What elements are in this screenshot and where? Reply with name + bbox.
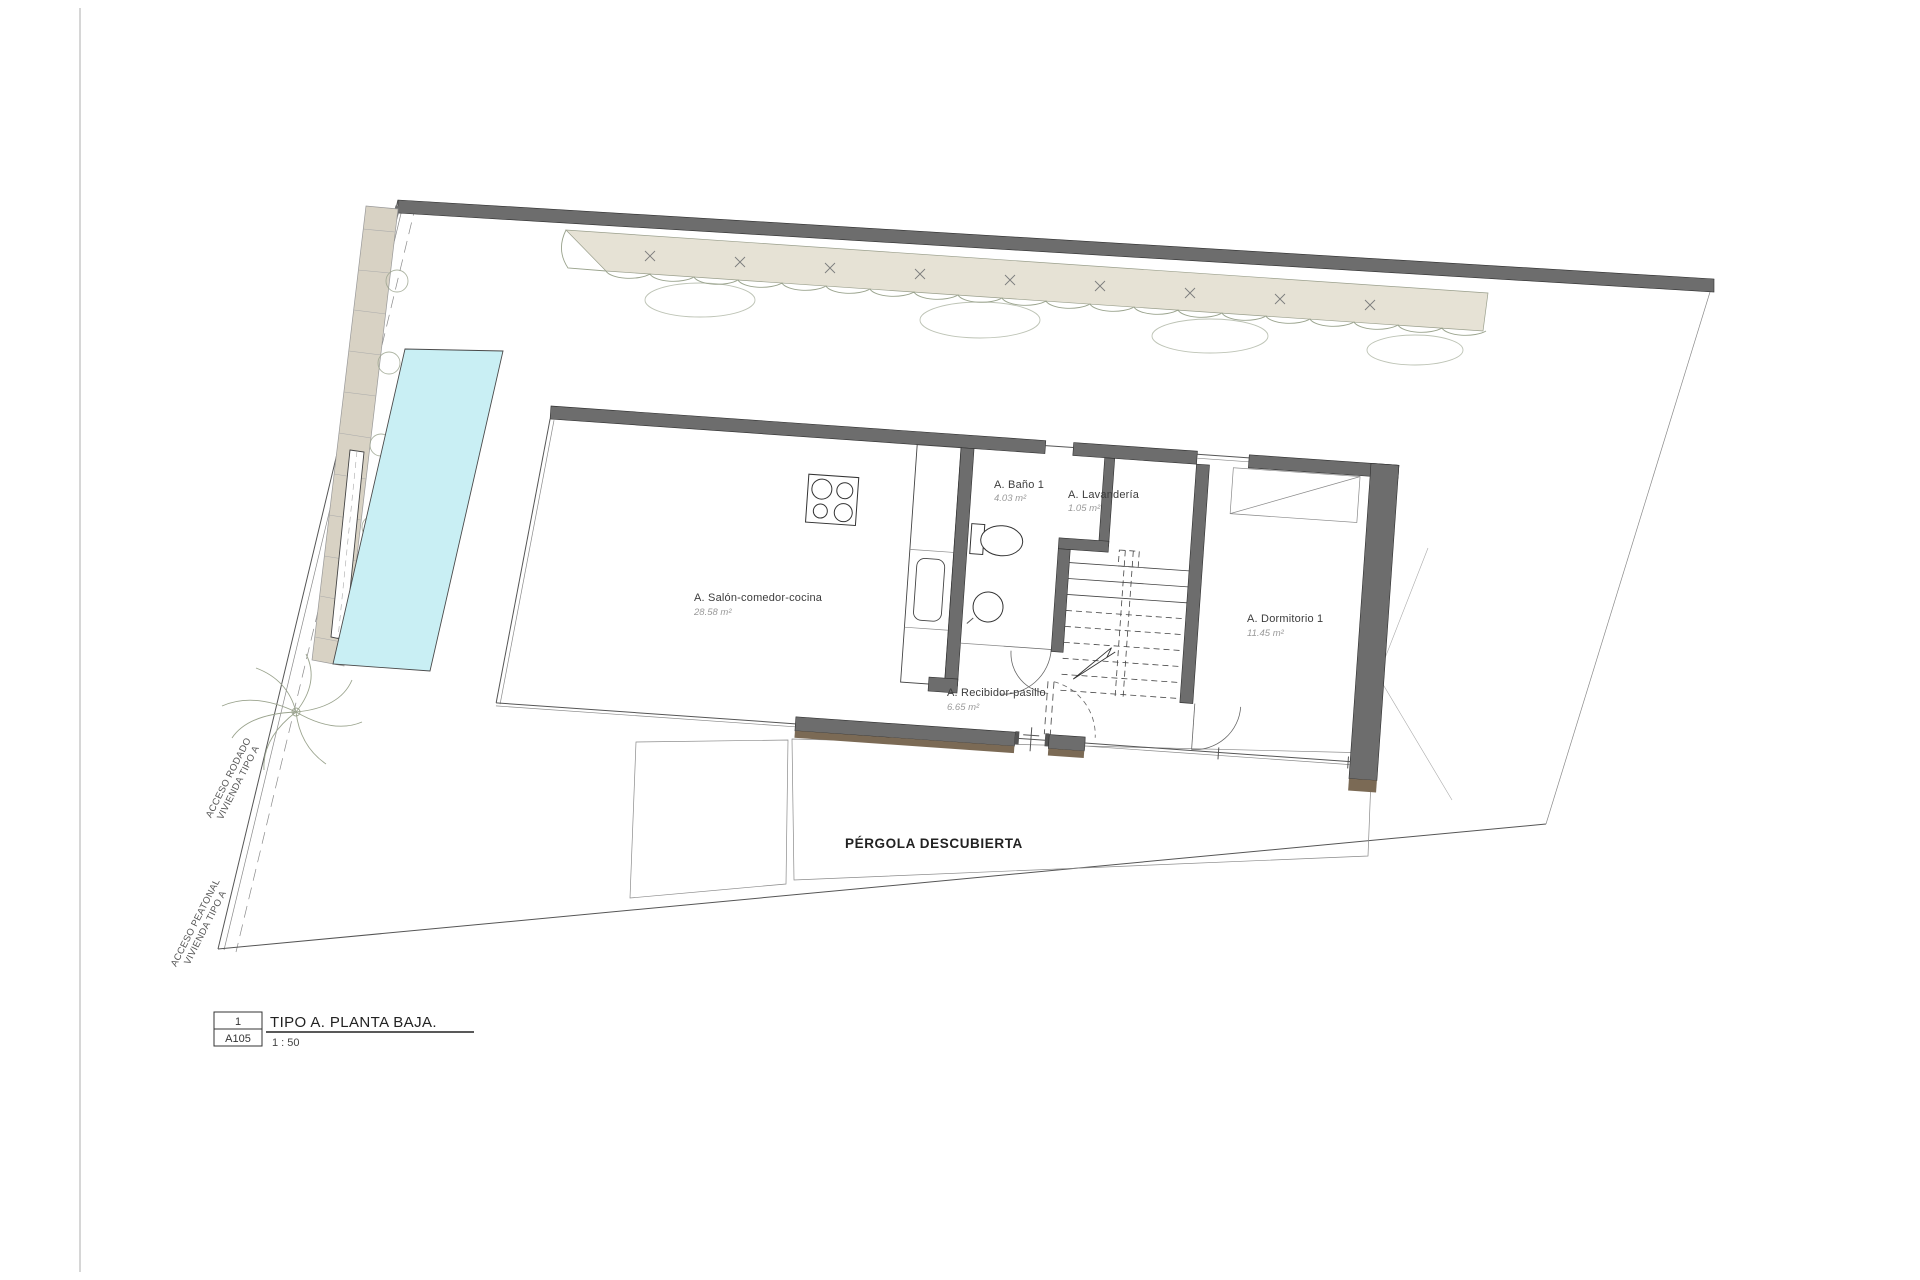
glass-facade-left xyxy=(496,417,550,706)
wall-bath-bottom xyxy=(960,643,1003,646)
sheet-scale: 1 : 50 xyxy=(272,1037,300,1049)
wall-laundry xyxy=(1099,458,1115,546)
label-bano1: A. Baño 1 xyxy=(994,479,1044,491)
dormitorio-door xyxy=(1192,704,1241,753)
wall-stairs-left xyxy=(1051,549,1070,653)
wall-right-cap xyxy=(1348,779,1377,793)
title-block: 1 A105 TIPO A. PLANTA BAJA. 1 : 50 xyxy=(214,1012,474,1049)
toilet-icon xyxy=(970,524,1024,558)
area-salon: 28.58 m² xyxy=(693,607,732,618)
window-salon-south xyxy=(496,703,795,724)
wall-right xyxy=(1349,463,1399,780)
sink-icon xyxy=(967,591,1004,626)
wall-dormitorio xyxy=(1180,464,1210,703)
stairs xyxy=(1060,547,1190,703)
sheet-number: 1 xyxy=(235,1016,241,1028)
terrace-outline xyxy=(630,740,788,898)
sheet-title: TIPO A. PLANTA BAJA. xyxy=(270,1014,437,1031)
wall-top-lavanderia xyxy=(1073,443,1198,465)
label-pergola: PÉRGOLA DESCUBIERTA xyxy=(845,836,1023,851)
wardrobe xyxy=(1230,468,1360,523)
area-lavanderia: 1.05 m² xyxy=(1068,503,1101,514)
building xyxy=(494,404,1399,793)
pergola-area xyxy=(630,739,1372,898)
label-salon: A. Salón-comedor-cocina xyxy=(694,592,823,604)
area-recibidor: 6.65 m² xyxy=(947,702,980,713)
label-recibidor: A. Recibidor-pasillo xyxy=(947,687,1046,699)
window-top xyxy=(1197,454,1249,458)
door-top xyxy=(1045,446,1073,448)
sheet-code: A105 xyxy=(225,1033,251,1045)
wall-top-salon xyxy=(550,406,1046,454)
area-bano1: 4.03 m² xyxy=(994,493,1027,504)
wall-entry-pier xyxy=(1048,735,1085,751)
stove-icon xyxy=(806,474,859,525)
window-dormitorio-south xyxy=(1084,738,1350,769)
label-dormitorio1: A. Dormitorio 1 xyxy=(1247,613,1323,625)
area-dormitorio1: 11.45 m² xyxy=(1247,628,1285,639)
access-labels: ACCESO RODADO VIVIENDA TIPO A ACCESO PEA… xyxy=(169,736,264,974)
hall-door xyxy=(1044,681,1099,737)
floor-plan-sheet: A. Salón-comedor-cocina 28.58 m² A. Baño… xyxy=(0,0,1920,1280)
label-lavanderia: A. Lavandería xyxy=(1068,489,1140,501)
